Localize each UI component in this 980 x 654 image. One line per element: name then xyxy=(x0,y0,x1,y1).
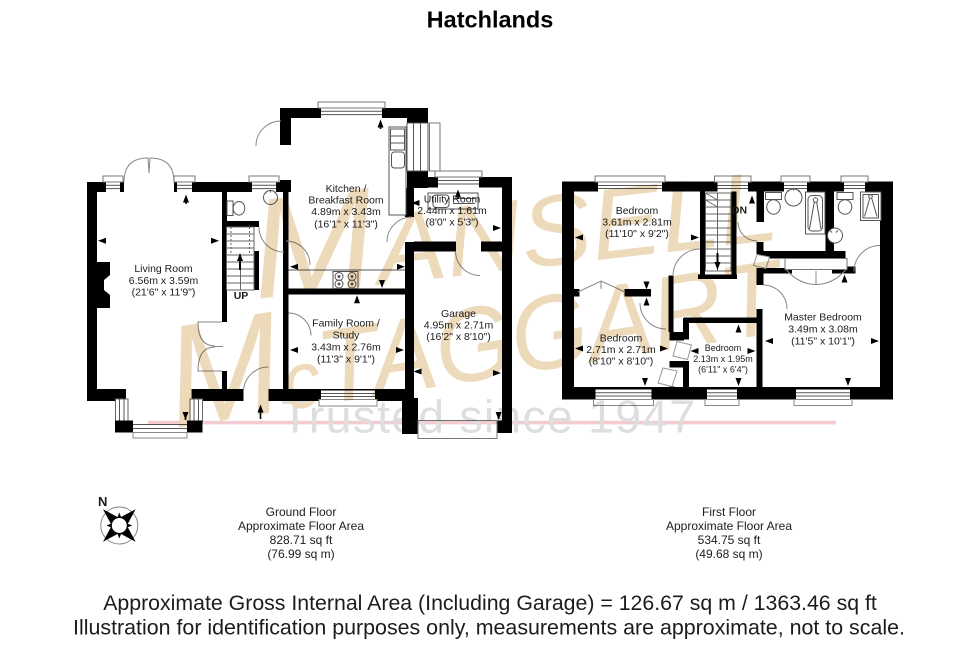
svg-text:First Floor: First Floor xyxy=(702,505,756,519)
svg-text:Approximate Floor Area: Approximate Floor Area xyxy=(666,519,792,533)
svg-text:Living Room: Living Room xyxy=(134,263,193,275)
svg-text:534.75 sq ft: 534.75 sq ft xyxy=(698,533,761,547)
svg-text:6.56m x 3.59m: 6.56m x 3.59m xyxy=(129,275,199,287)
svg-text:(11'5" x 10'1"): (11'5" x 10'1") xyxy=(791,336,855,348)
svg-text:3.49m x 3.08m: 3.49m x 3.08m xyxy=(788,324,858,336)
svg-text:Approximate Floor Area: Approximate Floor Area xyxy=(238,519,364,533)
svg-text:828.71 sq ft: 828.71 sq ft xyxy=(270,533,333,547)
svg-text:N: N xyxy=(98,494,107,509)
svg-text:Hatchlands: Hatchlands xyxy=(427,7,554,33)
svg-text:Master Bedroom: Master Bedroom xyxy=(784,312,862,324)
svg-text:Illustration for identificatio: Illustration for identification purposes… xyxy=(73,616,905,640)
svg-text:(49.68 sq m): (49.68 sq m) xyxy=(695,547,762,561)
svg-text:(76.99 sq m): (76.99 sq m) xyxy=(267,547,334,561)
svg-text:Approximate Gross Internal Are: Approximate Gross Internal Area (Includi… xyxy=(103,591,877,615)
svg-text:Ground Floor: Ground Floor xyxy=(266,505,337,519)
